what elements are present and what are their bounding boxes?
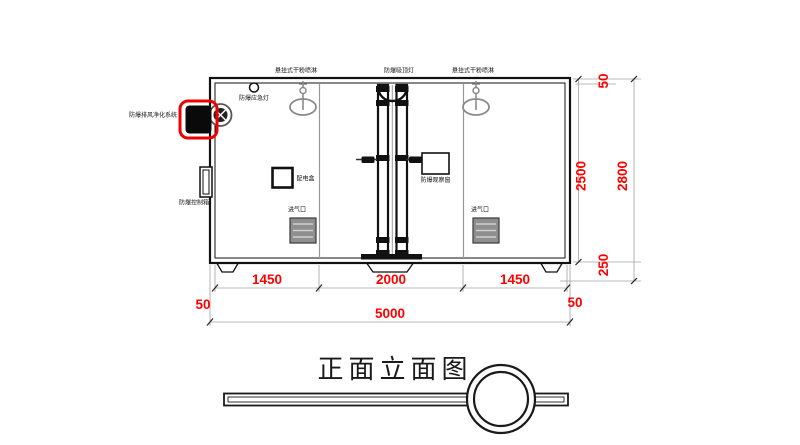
- foot-left: [217, 264, 238, 273]
- dim-wall-right: 50: [567, 295, 582, 310]
- label-purification-system: 防爆排风净化系统: [129, 111, 177, 119]
- emergency-lamp: [250, 83, 259, 92]
- observation-window: [422, 153, 449, 174]
- label-air-inlet-right: 进气口: [471, 206, 489, 214]
- label-control-box: 防爆控制箱: [179, 199, 209, 207]
- drawing-svg: 1450 2000 1450 50 5000 50 2500 50 2800 2…: [0, 0, 800, 445]
- foot-center: [367, 264, 413, 273]
- elevation-drawing: 1450 2000 1450 50 5000 50 2500 50 2800 2…: [0, 0, 800, 445]
- support-feet: [217, 264, 562, 273]
- dim-inner-height: 2500: [574, 161, 589, 191]
- dim-bay-center: 2000: [376, 272, 406, 287]
- label-observation-window: 防爆观察窗: [420, 176, 450, 184]
- label-emergency-lamp: 防爆应急灯: [239, 94, 269, 102]
- door-post-left: [378, 85, 388, 256]
- dim-overall-height: 2800: [615, 161, 630, 191]
- door-post-right: [397, 85, 408, 256]
- label-sprinkler-left: 悬挂式干粉喷淋: [275, 67, 317, 75]
- foot-right: [541, 264, 562, 273]
- control-box: [200, 167, 212, 197]
- label-sprinkler-right: 悬挂式干粉喷淋: [452, 67, 494, 75]
- dim-base-height: 250: [596, 254, 611, 277]
- power-box: [273, 168, 293, 188]
- door-threshold: [361, 254, 422, 260]
- label-power-box: 配电盒: [297, 175, 315, 183]
- dim-bay-right: 1450: [500, 272, 530, 287]
- dim-bay-left: 1450: [252, 272, 282, 287]
- dim-wall-left: 50: [195, 297, 210, 312]
- marker-ring-inner: [474, 372, 528, 426]
- air-inlet-left: [290, 218, 316, 243]
- dim-overall-width: 5000: [375, 306, 405, 321]
- air-inlet-right: [473, 218, 499, 243]
- label-air-inlet-left: 进气口: [288, 206, 306, 214]
- container-shell: [210, 78, 570, 263]
- label-ceiling-lamp: 防爆吸顶灯: [384, 67, 414, 75]
- drawing-title: 正面立面图: [317, 355, 472, 384]
- dim-roof-thickness: 50: [596, 73, 611, 88]
